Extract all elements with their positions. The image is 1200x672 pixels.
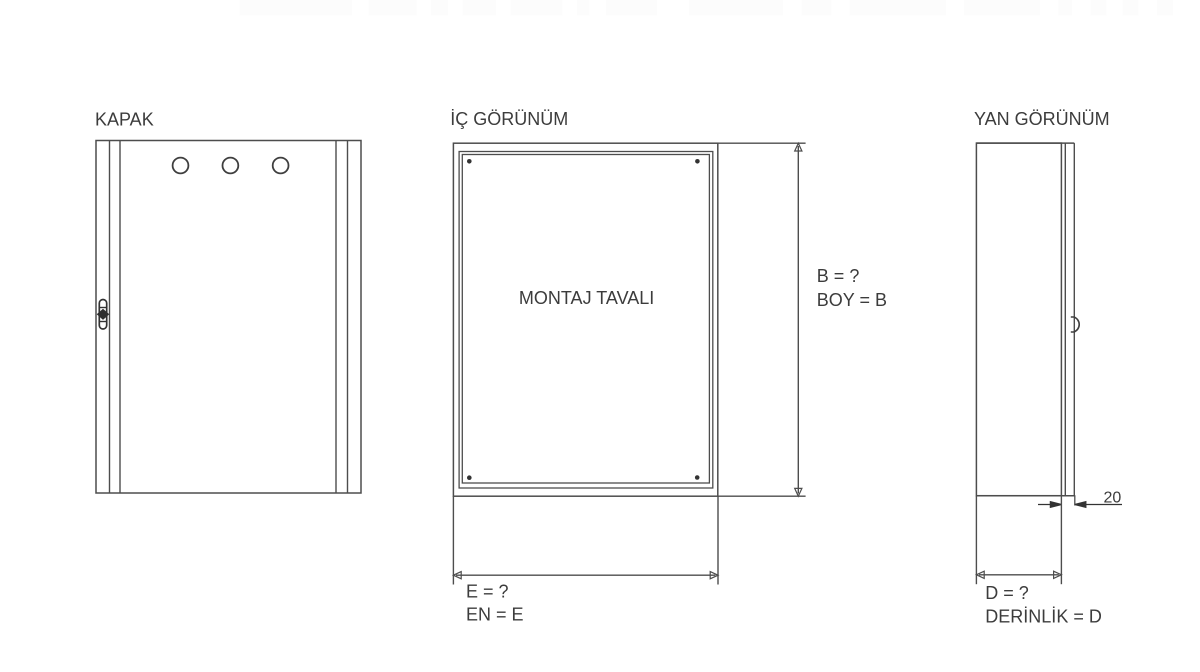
svg-text:B = ?: B = ? [817,266,860,286]
svg-text:E = ?: E = ? [466,581,509,601]
svg-text:YAN GÖRÜNÜM: YAN GÖRÜNÜM [974,109,1110,129]
svg-text:20: 20 [1104,489,1122,506]
svg-text:EN = E: EN = E [466,605,524,625]
svg-text:BOY = B: BOY = B [817,290,887,310]
svg-text:İÇ GÖRÜNÜM: İÇ GÖRÜNÜM [450,109,568,129]
svg-text:D = ?: D = ? [985,583,1029,603]
svg-text:KAPAK: KAPAK [95,109,154,129]
svg-text:DERİNLİK = D: DERİNLİK = D [985,607,1102,627]
svg-text:MONTAJ TAVALI: MONTAJ TAVALI [519,288,654,308]
